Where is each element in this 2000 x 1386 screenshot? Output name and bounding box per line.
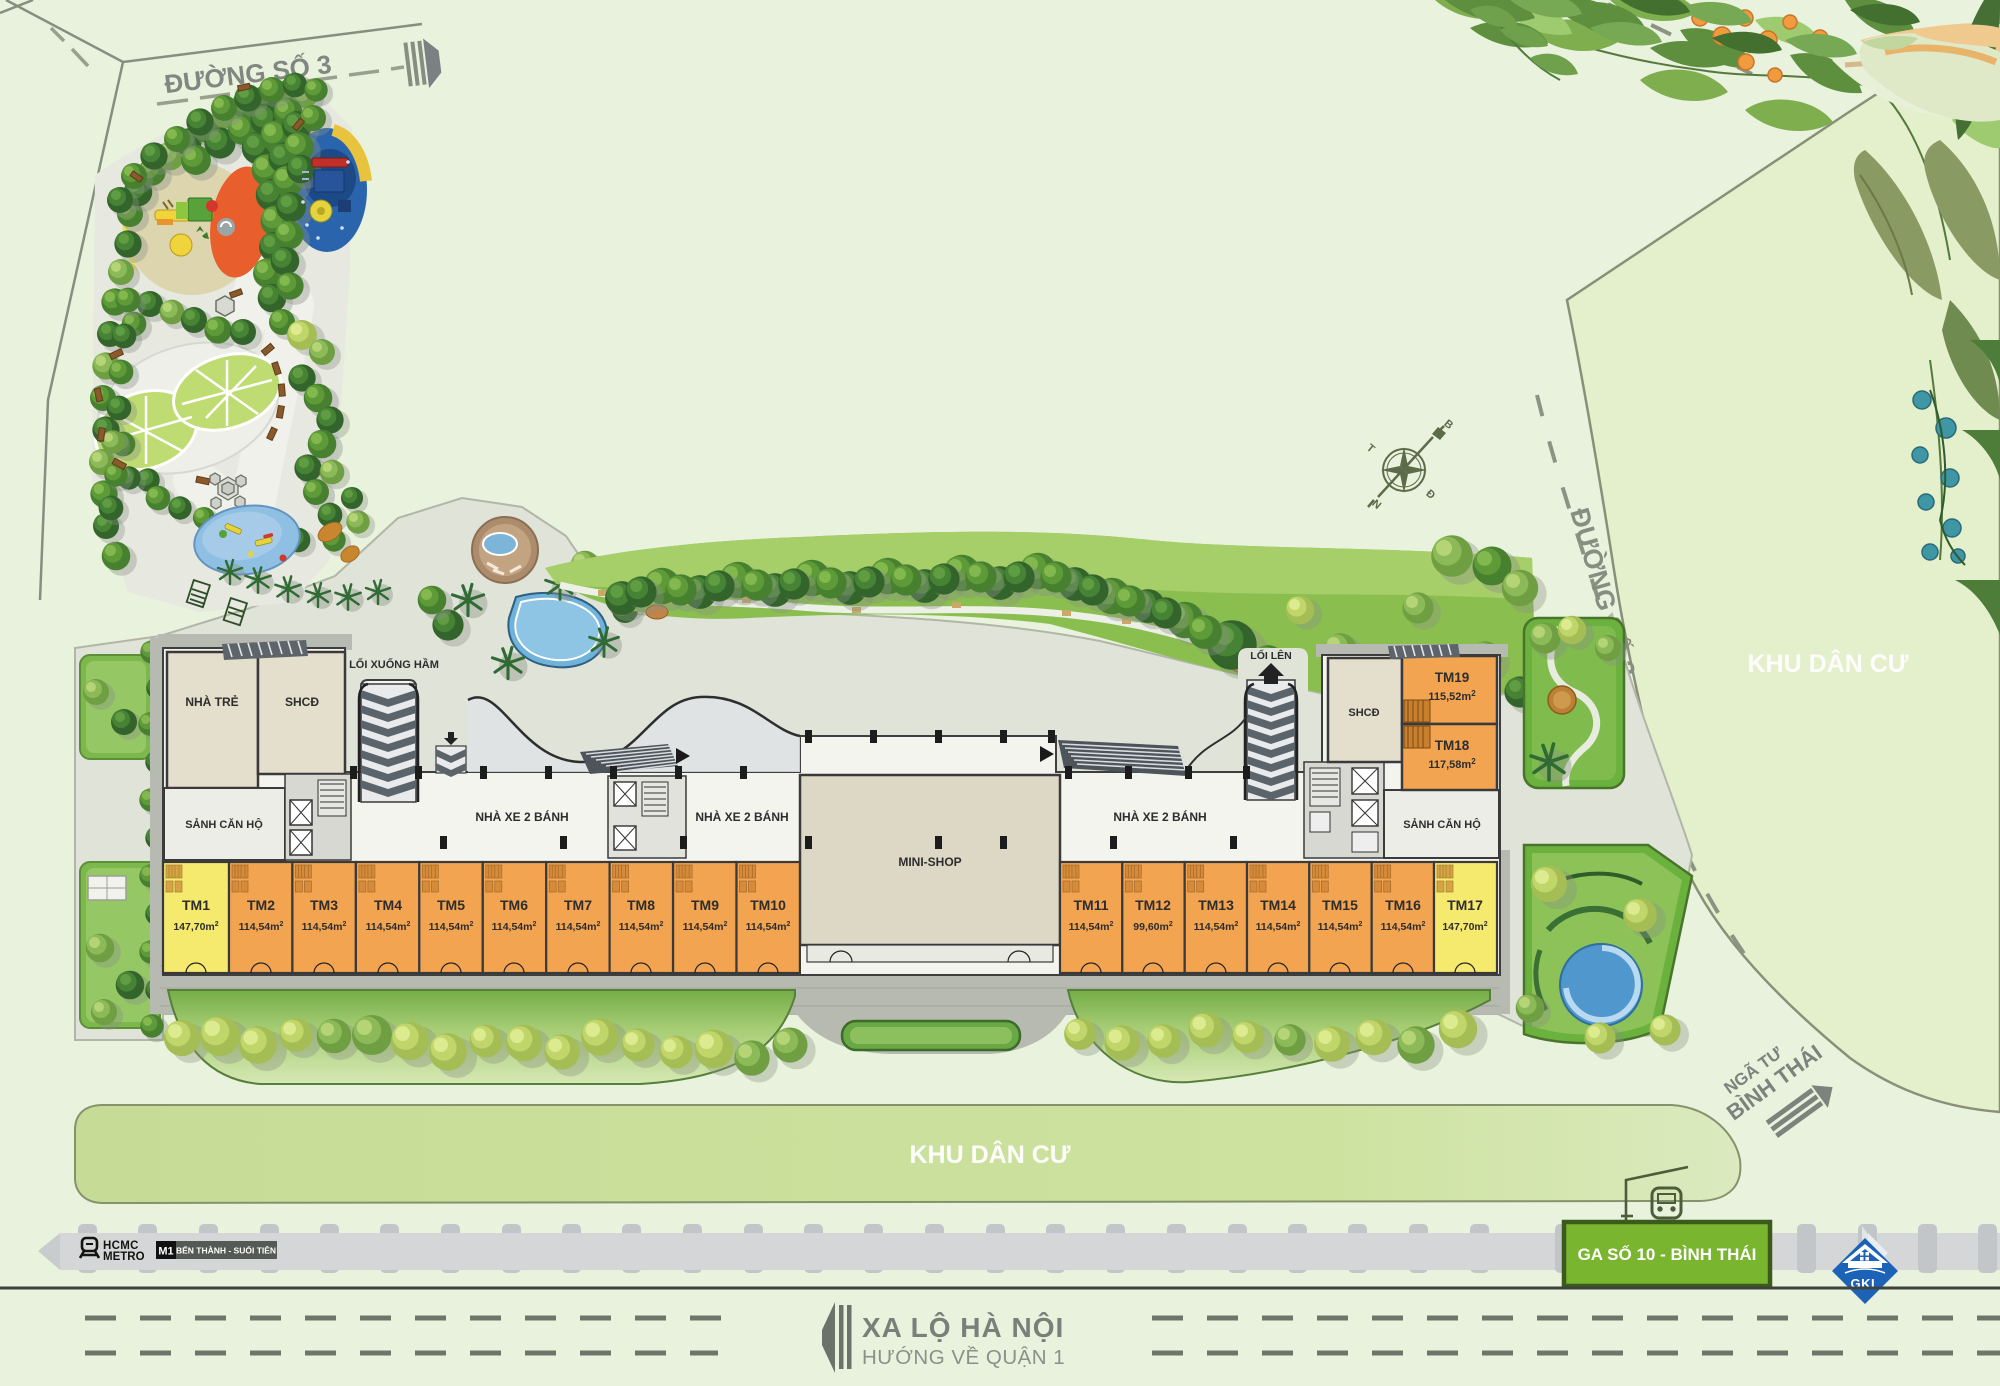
svg-text:TM18: TM18 — [1435, 738, 1470, 753]
svg-text:TM11: TM11 — [1073, 897, 1108, 913]
svg-text:114,54m2: 114,54m2 — [683, 921, 728, 933]
svg-text:HƯỚNG VỀ QUẬN 1: HƯỚNG VỀ QUẬN 1 — [862, 1346, 1065, 1369]
svg-text:114,54m2: 114,54m2 — [302, 921, 347, 933]
svg-text:TM7: TM7 — [564, 897, 592, 913]
svg-text:99,60m2: 99,60m2 — [1133, 921, 1173, 933]
svg-text:TM4: TM4 — [374, 897, 402, 913]
svg-text:114,54m2: 114,54m2 — [1381, 921, 1426, 933]
svg-text:GA SỐ 10 - BÌNH THÁI: GA SỐ 10 - BÌNH THÁI — [1578, 1244, 1757, 1264]
svg-text:TM12: TM12 — [1135, 897, 1171, 913]
svg-text:NHÀ XE 2 BÁNH: NHÀ XE 2 BÁNH — [475, 809, 568, 824]
svg-text:BẾN THÀNH - SUỐI TIÊN: BẾN THÀNH - SUỐI TIÊN — [176, 1245, 276, 1256]
svg-text:TM17: TM17 — [1447, 897, 1483, 913]
svg-text:TM2: TM2 — [247, 897, 275, 913]
svg-text:TM16: TM16 — [1385, 897, 1421, 913]
svg-text:TM10: TM10 — [750, 897, 786, 913]
svg-text:KHU DÂN CƯ: KHU DÂN CƯ — [909, 1139, 1070, 1169]
svg-text:KHU DÂN CƯ: KHU DÂN CƯ — [1747, 648, 1908, 678]
svg-text:115,52m2: 115,52m2 — [1428, 689, 1476, 703]
svg-text:TM1: TM1 — [182, 897, 210, 913]
svg-text:114,54m2: 114,54m2 — [556, 921, 601, 933]
svg-text:114,54m2: 114,54m2 — [746, 921, 791, 933]
svg-text:M1: M1 — [158, 1246, 173, 1258]
svg-text:117,58m2: 117,58m2 — [1428, 757, 1476, 771]
svg-text:MINI-SHOP: MINI-SHOP — [898, 855, 961, 869]
svg-text:SẢNH CĂN HỘ: SẢNH CĂN HỘ — [1403, 818, 1481, 831]
svg-text:114,54m2: 114,54m2 — [619, 921, 664, 933]
svg-text:NHÀ XE 2 BÁNH: NHÀ XE 2 BÁNH — [695, 809, 788, 824]
svg-text:TM3: TM3 — [310, 897, 338, 913]
svg-text:114,54m2: 114,54m2 — [1069, 921, 1114, 933]
svg-text:TM6: TM6 — [500, 897, 528, 913]
svg-text:NHÀ TRẺ: NHÀ TRẺ — [185, 694, 238, 709]
svg-text:TM19: TM19 — [1435, 670, 1470, 685]
svg-text:NHÀ XE 2 BÁNH: NHÀ XE 2 BÁNH — [1113, 809, 1206, 824]
svg-text:SẢNH CĂN HỘ: SẢNH CĂN HỘ — [185, 818, 263, 831]
svg-text:TM9: TM9 — [691, 897, 719, 913]
svg-text:147,70m2: 147,70m2 — [173, 921, 218, 933]
svg-text:114,54m2: 114,54m2 — [429, 921, 474, 933]
svg-text:114,54m2: 114,54m2 — [366, 921, 411, 933]
svg-text:SHCĐ: SHCĐ — [1348, 707, 1379, 719]
svg-text:114,54m2: 114,54m2 — [1256, 921, 1301, 933]
svg-text:LỐI XUỐNG HẦM: LỐI XUỐNG HẦM — [349, 657, 439, 671]
svg-text:TM15: TM15 — [1322, 897, 1358, 913]
svg-text:147,70m2: 147,70m2 — [1442, 921, 1487, 933]
svg-text:114,54m2: 114,54m2 — [1194, 921, 1239, 933]
svg-text:XA LỘ HÀ NỘI: XA LỘ HÀ NỘI — [862, 1311, 1064, 1343]
svg-text:114,54m2: 114,54m2 — [1318, 921, 1363, 933]
svg-text:TM13: TM13 — [1198, 897, 1234, 913]
svg-text:LỐI LÊN: LỐI LÊN — [1250, 648, 1291, 662]
svg-text:TM14: TM14 — [1260, 897, 1296, 913]
svg-text:114,54m2: 114,54m2 — [492, 921, 537, 933]
svg-text:METRO: METRO — [103, 1251, 145, 1263]
svg-text:SHCĐ: SHCĐ — [285, 695, 319, 709]
svg-text:TM5: TM5 — [437, 897, 465, 913]
svg-text:114,54m2: 114,54m2 — [239, 921, 284, 933]
svg-text:TM8: TM8 — [627, 897, 655, 913]
